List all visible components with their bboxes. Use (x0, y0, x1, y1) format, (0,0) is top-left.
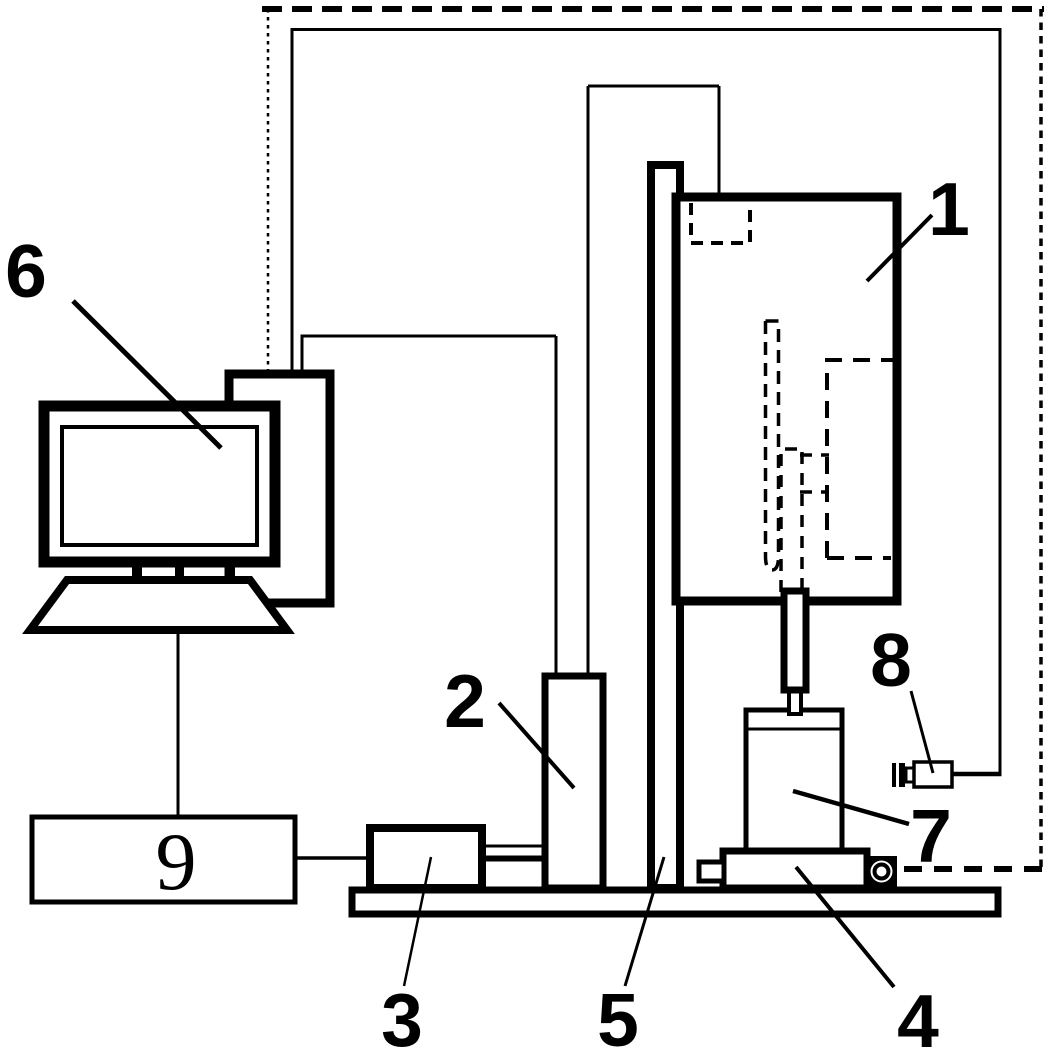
piston-rod-tube (784, 591, 806, 690)
computer-workstation (30, 374, 330, 630)
label-2: 2 (444, 659, 486, 743)
label-5: 5 (597, 978, 639, 1049)
stage-roller-ring (875, 865, 889, 879)
label-3: 3 (381, 978, 423, 1049)
keyboard (30, 580, 287, 630)
apparatus-schematic-figure: 1 2 3 4 5 6 7 8 9 (0, 0, 1053, 1049)
drive-rails (482, 846, 546, 859)
stage-body-4 (723, 851, 867, 888)
label-8: 8 (870, 618, 912, 702)
slide-tower-2 (545, 676, 603, 888)
camera-body (914, 762, 952, 787)
camera-lens-ring-2 (899, 763, 905, 787)
label-1: 1 (928, 167, 970, 251)
actuator-stack-7 (746, 591, 842, 854)
camera-lens-ring-1 (892, 763, 896, 787)
stage-left-tab (699, 862, 724, 881)
label-4: 4 (897, 979, 939, 1049)
label-7: 7 (910, 794, 952, 878)
actuator-body-7 (746, 710, 842, 854)
monitor-screen (62, 427, 257, 545)
chamber-box-1 (676, 197, 897, 601)
diagram-root: 1 2 3 4 5 6 7 8 9 (5, 9, 1044, 1049)
base-plate (352, 890, 998, 914)
leader-5 (625, 857, 664, 986)
camera-8 (892, 762, 952, 787)
label-9: 9 (156, 816, 197, 907)
connector-neck (789, 690, 801, 714)
label-6: 6 (5, 229, 47, 313)
